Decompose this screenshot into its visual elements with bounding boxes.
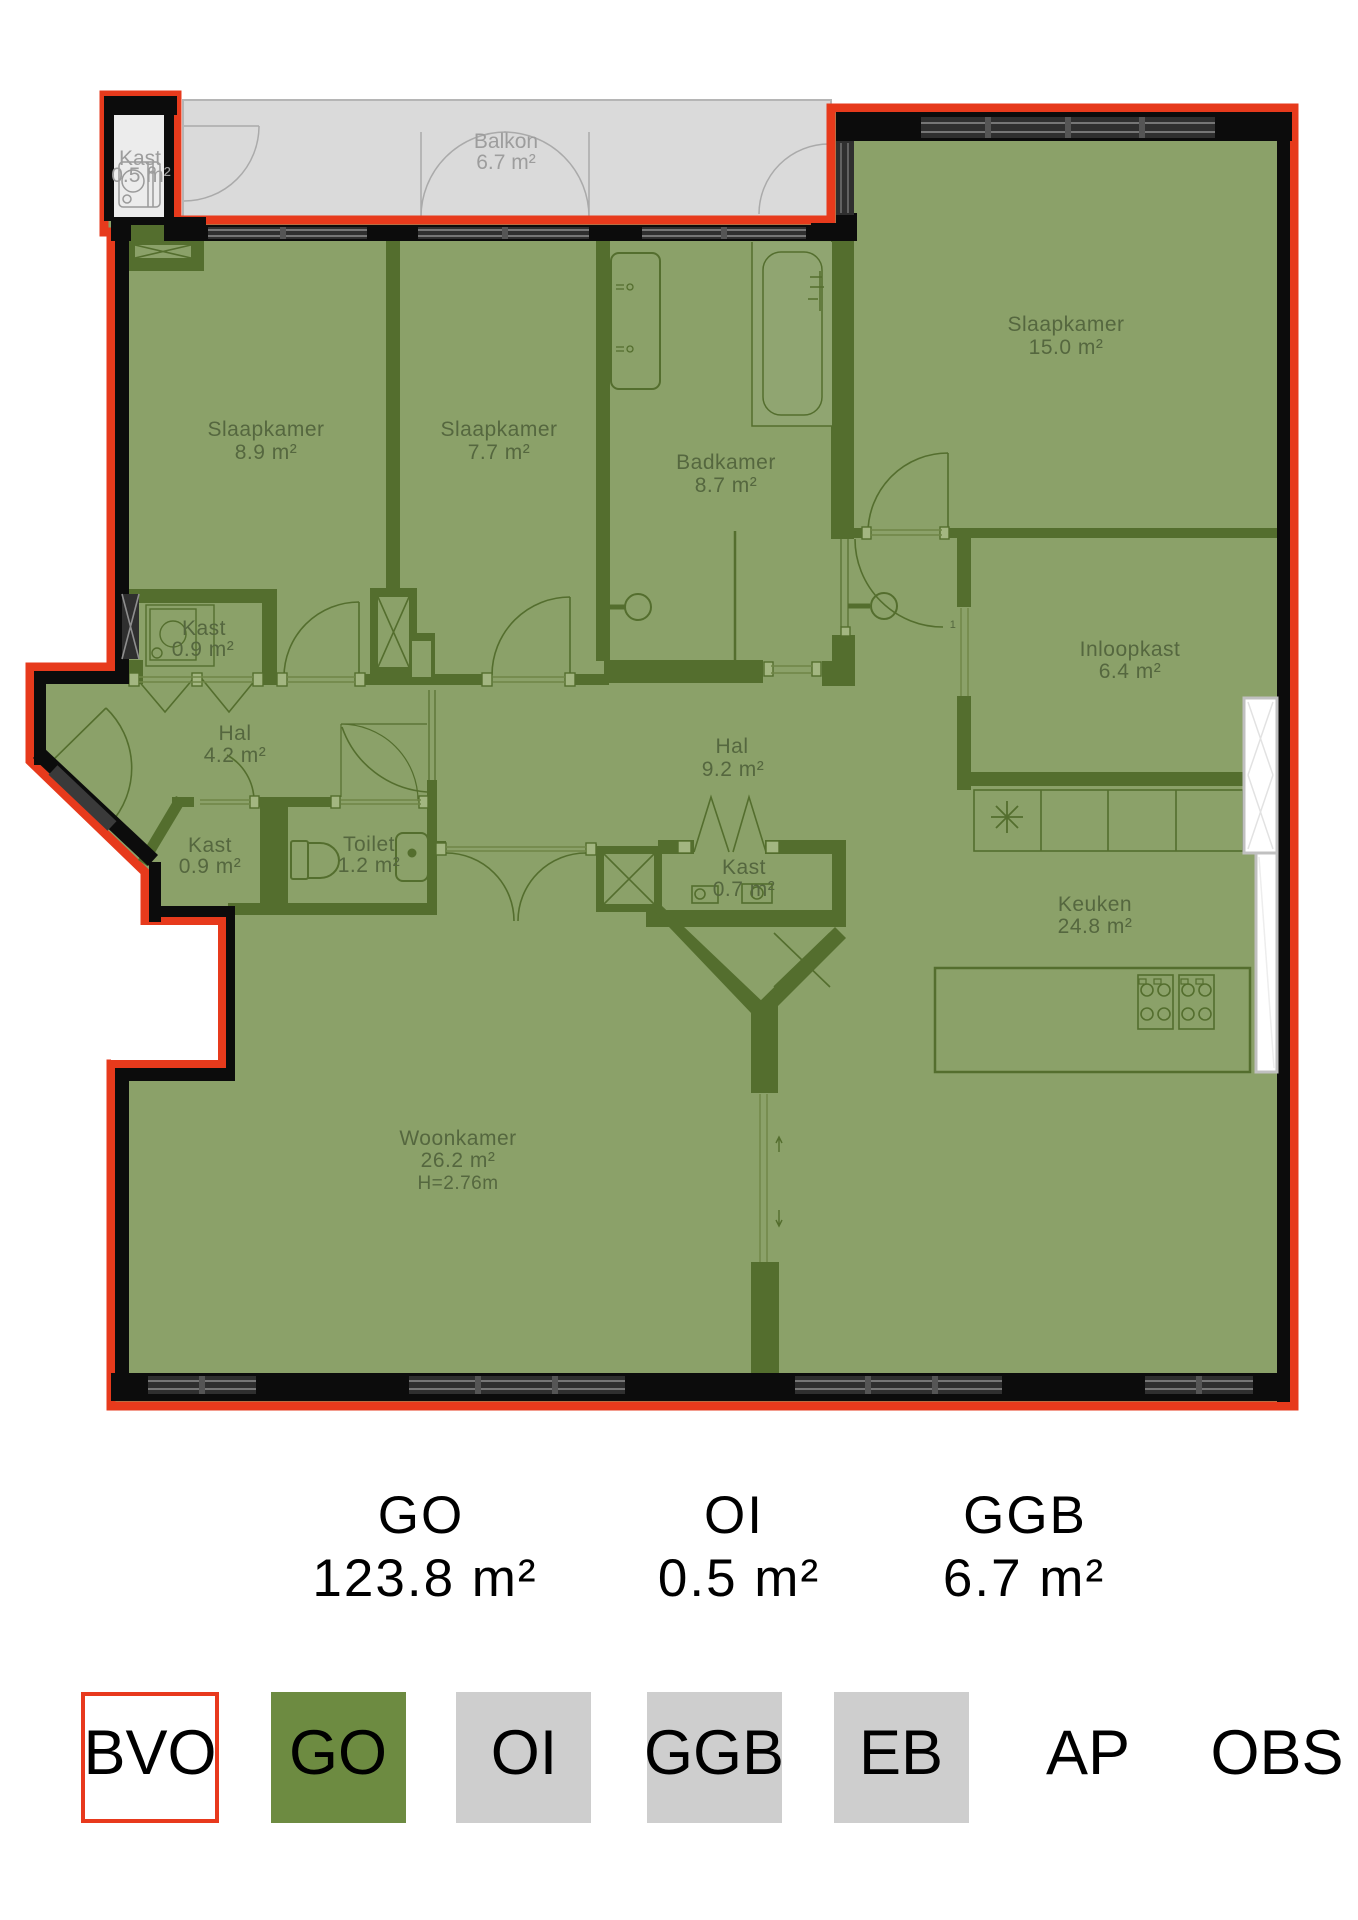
svg-text:0.5 m²: 0.5 m² [111,164,171,187]
svg-text:OI: OI [491,1718,558,1788]
svg-text:OI: OI [704,1486,764,1545]
svg-text:GO: GO [289,1718,387,1788]
svg-text:Slaapkamer: Slaapkamer [440,418,557,441]
svg-text:24.8 m²: 24.8 m² [1058,915,1133,938]
svg-text:4.2 m²: 4.2 m² [204,744,267,767]
svg-text:Slaapkamer: Slaapkamer [1007,313,1124,336]
svg-text:Inloopkast: Inloopkast [1080,638,1181,661]
svg-text:8.7 m²: 8.7 m² [695,474,758,497]
svg-text:1.2 m²: 1.2 m² [338,854,401,877]
svg-text:15.0 m²: 15.0 m² [1029,336,1104,359]
svg-text:26.2 m²: 26.2 m² [421,1149,496,1172]
svg-text:Hal: Hal [218,722,251,745]
svg-text:Keuken: Keuken [1058,893,1132,916]
svg-text:GGB: GGB [644,1718,784,1788]
svg-text:Kast: Kast [722,856,766,879]
svg-text:Toilet: Toilet [343,833,395,856]
svg-text:Slaapkamer: Slaapkamer [207,418,324,441]
svg-text:GGB: GGB [963,1486,1087,1545]
svg-text:8.9 m²: 8.9 m² [235,441,298,464]
svg-text:1: 1 [950,619,957,631]
svg-text:OBS: OBS [1210,1718,1343,1788]
svg-text:0.9 m²: 0.9 m² [179,855,242,878]
svg-text:BVO: BVO [83,1718,216,1788]
svg-text:Kast: Kast [188,834,232,857]
svg-text:GO: GO [378,1486,464,1545]
svg-text:Balkon: Balkon [474,130,538,153]
svg-text:Badkamer: Badkamer [676,451,776,474]
svg-text:6.7 m²: 6.7 m² [943,1549,1105,1608]
svg-text:H=2.76m: H=2.76m [417,1173,498,1194]
svg-text:0.9 m²: 0.9 m² [172,638,235,661]
svg-text:6.4 m²: 6.4 m² [1099,660,1162,683]
svg-text:AP: AP [1046,1718,1130,1788]
svg-text:0.7 m²: 0.7 m² [713,878,776,901]
svg-text:123.8 m²: 123.8 m² [312,1549,537,1608]
svg-text:0.5 m²: 0.5 m² [658,1549,820,1608]
svg-text:EB: EB [859,1718,943,1788]
svg-text:7.7 m²: 7.7 m² [468,441,531,464]
svg-text:6.7 m²: 6.7 m² [476,151,536,174]
svg-text:Hal: Hal [715,735,748,758]
svg-text:Woonkamer: Woonkamer [399,1127,516,1150]
svg-text:Kast: Kast [182,617,226,640]
svg-text:9.2 m²: 9.2 m² [702,758,765,781]
